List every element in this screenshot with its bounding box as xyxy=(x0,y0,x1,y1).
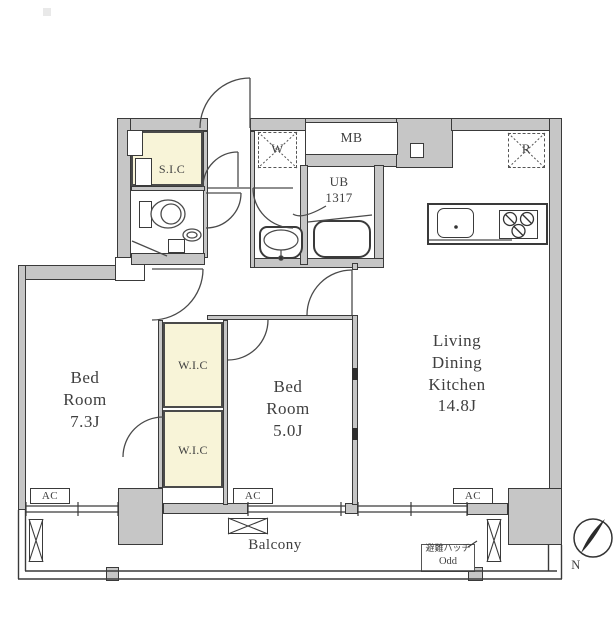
bedroom2-label: Bed Room 5.0J xyxy=(238,376,338,441)
ub-leader-line xyxy=(293,206,326,216)
sic-door-arc xyxy=(203,152,238,187)
wall-sic-toilet xyxy=(131,186,205,191)
window-ldk xyxy=(358,502,467,516)
refrigerator-label: R xyxy=(508,141,545,158)
wall-ldk-left xyxy=(352,315,358,505)
window-bedroom1 xyxy=(26,502,118,516)
compass-icon xyxy=(574,519,612,557)
sliding-door-mark xyxy=(352,428,358,440)
wall-corner-block xyxy=(508,488,562,545)
bedroom1-door-arc xyxy=(152,269,203,320)
toilet-icon xyxy=(151,200,201,241)
wall-left-main xyxy=(18,265,26,510)
shoe-cabinet xyxy=(127,130,143,156)
wall-ub-bottom xyxy=(250,258,384,268)
wall-top-mid xyxy=(250,118,307,131)
kitchen-sink xyxy=(437,208,474,238)
ub-label-line2: 1317 xyxy=(304,190,374,207)
ldk-label: Living Dining Kitchen 14.8J xyxy=(397,330,517,417)
wall-sic-right xyxy=(203,131,208,258)
toilet-counter xyxy=(168,239,185,253)
wic-lower-label: W.I.C xyxy=(163,443,223,458)
washer-label: W xyxy=(258,141,297,158)
mb-label: MB xyxy=(305,129,398,146)
artifact-square xyxy=(43,8,51,16)
evac-hatch-line1: 避難ハッチ xyxy=(416,543,480,555)
ldk-door-arc xyxy=(307,270,352,315)
sill-ldk-right xyxy=(467,503,508,515)
wall-bedroom2-top xyxy=(207,315,357,320)
wall-step-notch xyxy=(410,143,424,158)
ub-label-line1: UB xyxy=(304,174,374,191)
toilet-tank xyxy=(139,201,152,228)
balcony-partition-right xyxy=(487,519,501,562)
wall-step-block xyxy=(396,118,453,168)
wall-wic-right xyxy=(223,320,228,505)
wall-ldk-left-upper xyxy=(352,263,358,270)
wic-upper-label: W.I.C xyxy=(163,358,223,373)
washroom-door-arc xyxy=(253,188,293,228)
balcony-partition-left xyxy=(29,519,43,562)
ac-label-2: AC xyxy=(233,489,273,503)
wall-pillar-south xyxy=(118,488,163,545)
balcony-post xyxy=(106,567,119,581)
toilet-door-arc xyxy=(206,193,241,228)
kitchen-stove xyxy=(499,210,538,239)
wall-ub-right xyxy=(374,165,384,265)
window-bedroom2 xyxy=(248,502,345,516)
compass-north-label: N xyxy=(565,557,587,573)
wall-right xyxy=(549,118,562,490)
floor-plan: S.I.C W.I.C W.I.C MB UB 1317 W R AC AC A… xyxy=(0,0,615,644)
ac-label-3: AC xyxy=(453,489,493,503)
wall-top-right xyxy=(451,118,562,131)
sic-label: S.I.C xyxy=(142,162,202,177)
bathtub xyxy=(313,220,371,258)
sliding-door-mark xyxy=(352,368,358,380)
wall-toilet-bottom xyxy=(131,253,205,265)
wall-hall-washroom xyxy=(250,131,255,268)
evac-hatch-line2: Odd xyxy=(421,555,475,568)
bedroom1-label: Bed Room 7.3J xyxy=(33,367,137,432)
ac-label-1: AC xyxy=(30,489,70,503)
washbasin xyxy=(259,226,303,259)
balcony-label: Balcony xyxy=(225,536,325,555)
wic-upper-door-arc xyxy=(228,320,268,360)
sill-under-wic xyxy=(163,503,248,514)
balcony-drain-box xyxy=(228,518,268,534)
